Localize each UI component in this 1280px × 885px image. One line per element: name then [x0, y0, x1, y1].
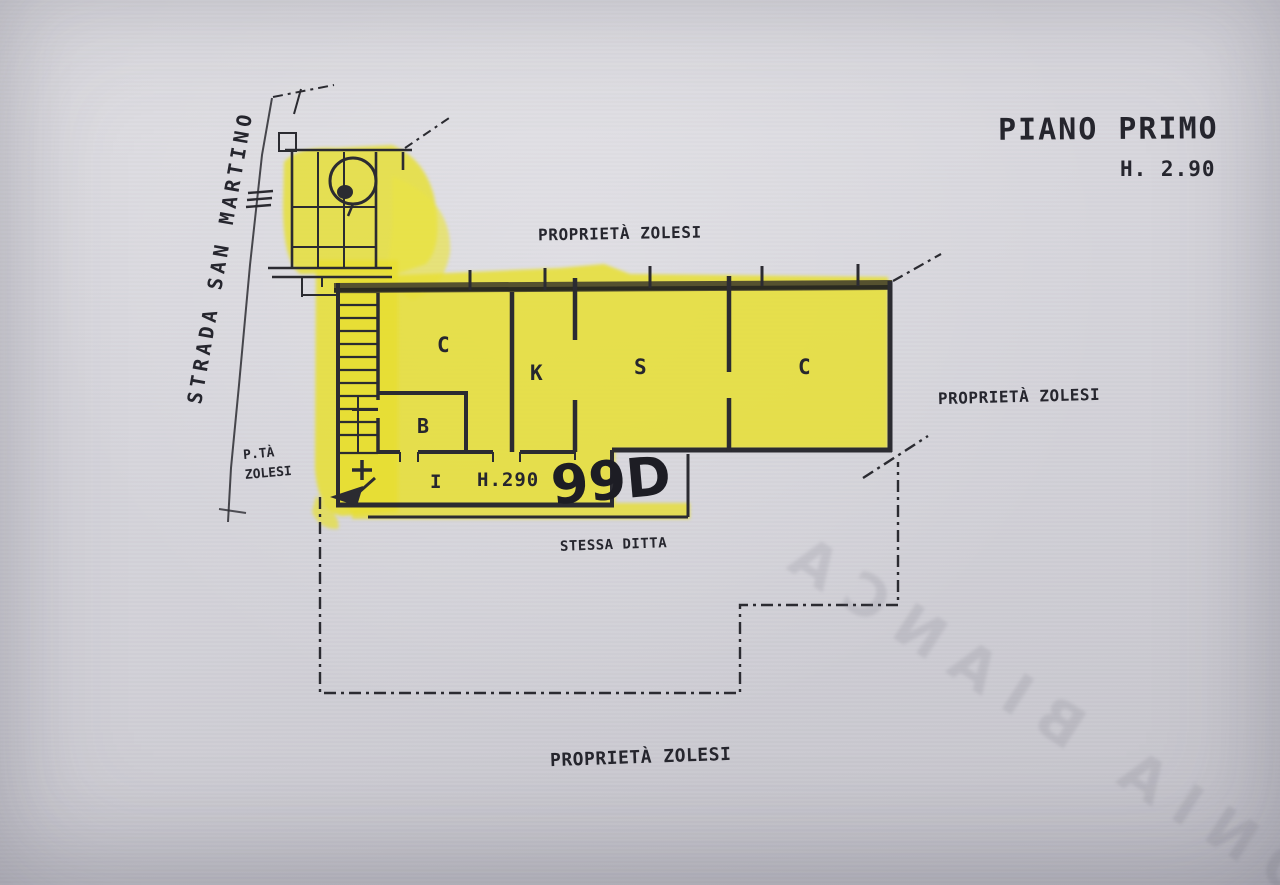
room-label-s: S — [634, 355, 647, 379]
property-label-left-line2: ZOLESI — [244, 461, 292, 485]
page-title: PIANO PRIMO — [998, 111, 1219, 148]
terrace-dash-diagonal — [405, 116, 452, 148]
floor-height-note: H. 2.90 — [1120, 157, 1216, 181]
scanned-page: C K S C B I H.290 99D PIANO PRIMO H. 2.9… — [0, 0, 1280, 885]
road-triple-tick — [246, 191, 273, 207]
terrace-corner-square — [279, 133, 296, 151]
room-label-i: I — [430, 471, 441, 493]
property-label-top: PROPRIETÀ ZOLESI — [538, 223, 702, 245]
property-label-left: P.TÀ ZOLESI — [242, 442, 292, 485]
handwritten-mark: 99D — [548, 444, 673, 517]
room-label-k: K — [530, 361, 543, 385]
room-label-c1: C — [437, 333, 450, 357]
road-top-dashes — [273, 85, 334, 97]
room-label-b: B — [417, 414, 429, 438]
interior-height-note: H.290 — [477, 469, 539, 491]
road-end-tick — [219, 509, 246, 513]
room-label-c2: C — [798, 355, 811, 379]
stair-spiral-core — [337, 185, 353, 199]
boundary-topright-diagonal — [893, 254, 941, 281]
